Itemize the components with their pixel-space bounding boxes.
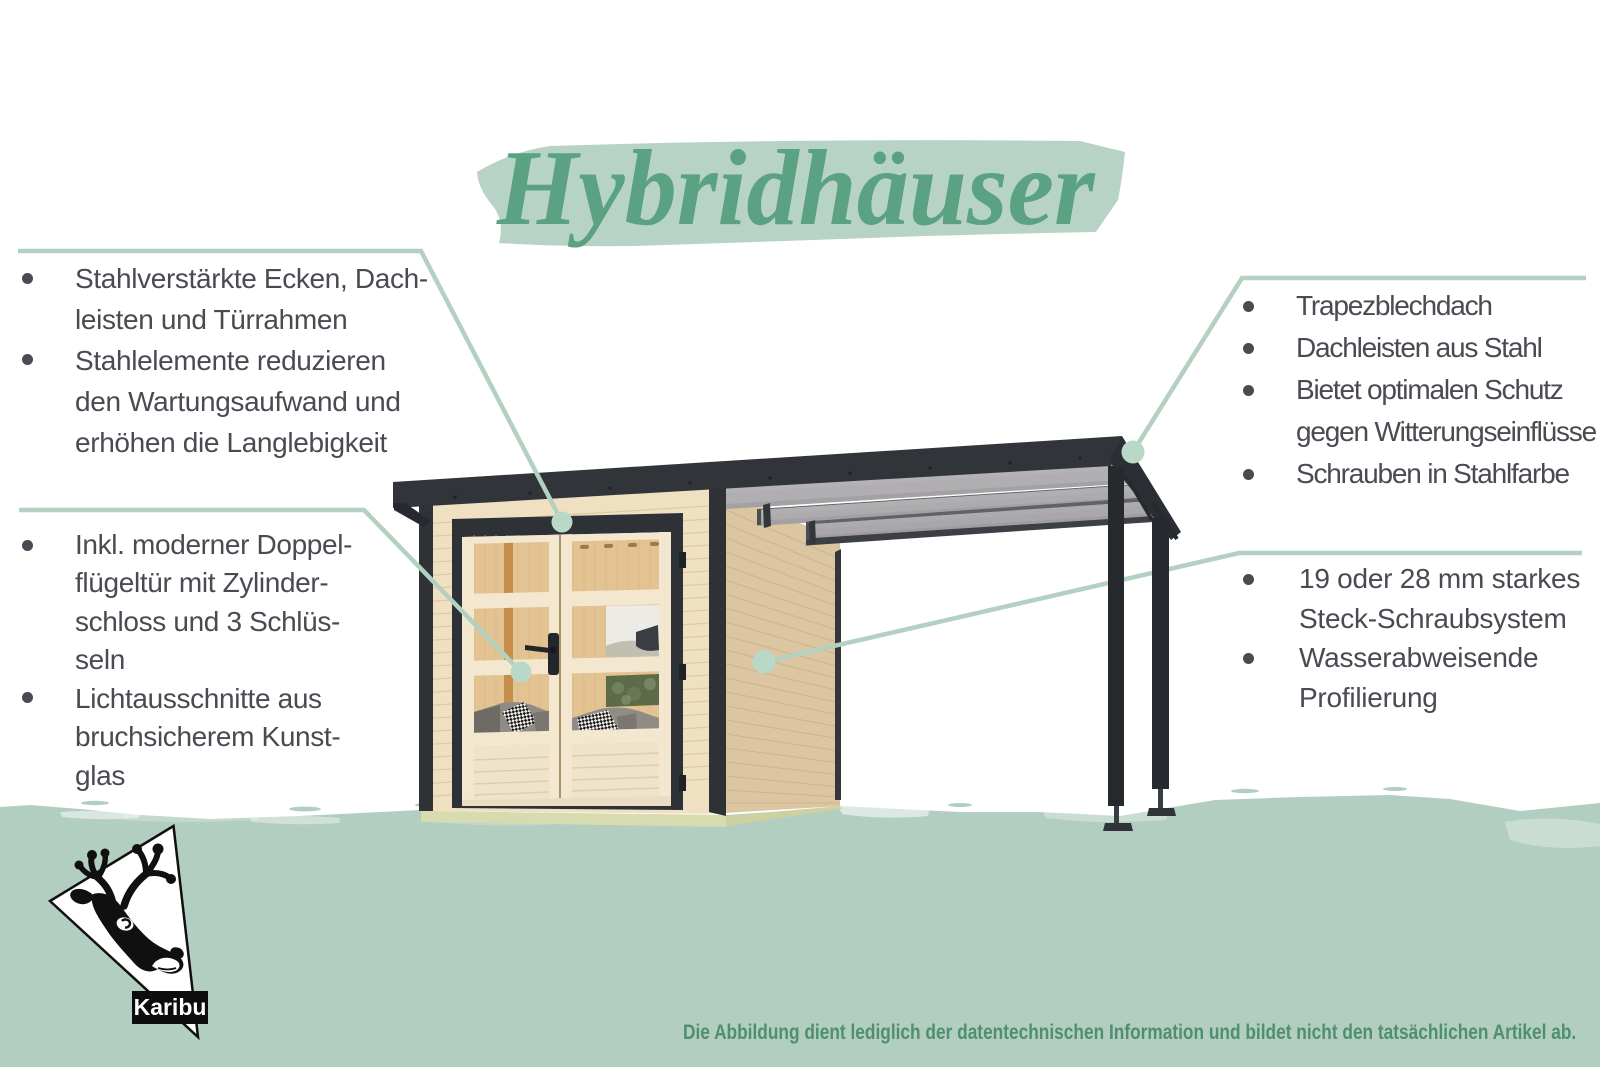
svg-text:Die Abbildung dient lediglich: Die Abbildung dient lediglich der datent… xyxy=(683,1020,1576,1044)
svg-text:Hybridhäuser: Hybridhäuser xyxy=(496,127,1096,247)
svg-text:Karibu: Karibu xyxy=(134,994,207,1020)
